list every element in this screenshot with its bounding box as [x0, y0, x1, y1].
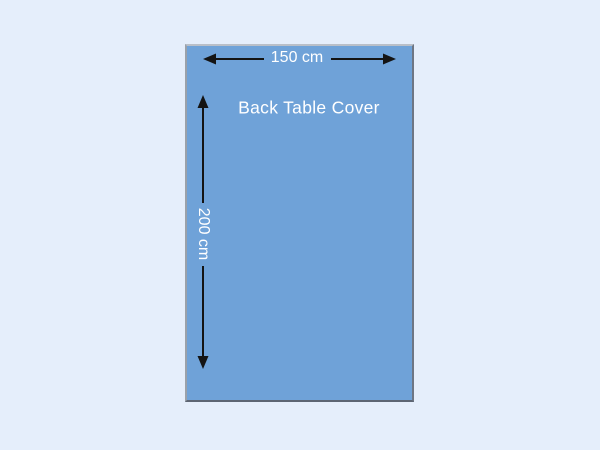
diagram-canvas: 150 cm 200 cm Back Table Cover [0, 0, 600, 450]
height-dimension-label: 200 cm [194, 208, 212, 260]
width-dimension-label: 150 cm [271, 49, 323, 67]
diagram-title: Back Table Cover [238, 98, 380, 119]
